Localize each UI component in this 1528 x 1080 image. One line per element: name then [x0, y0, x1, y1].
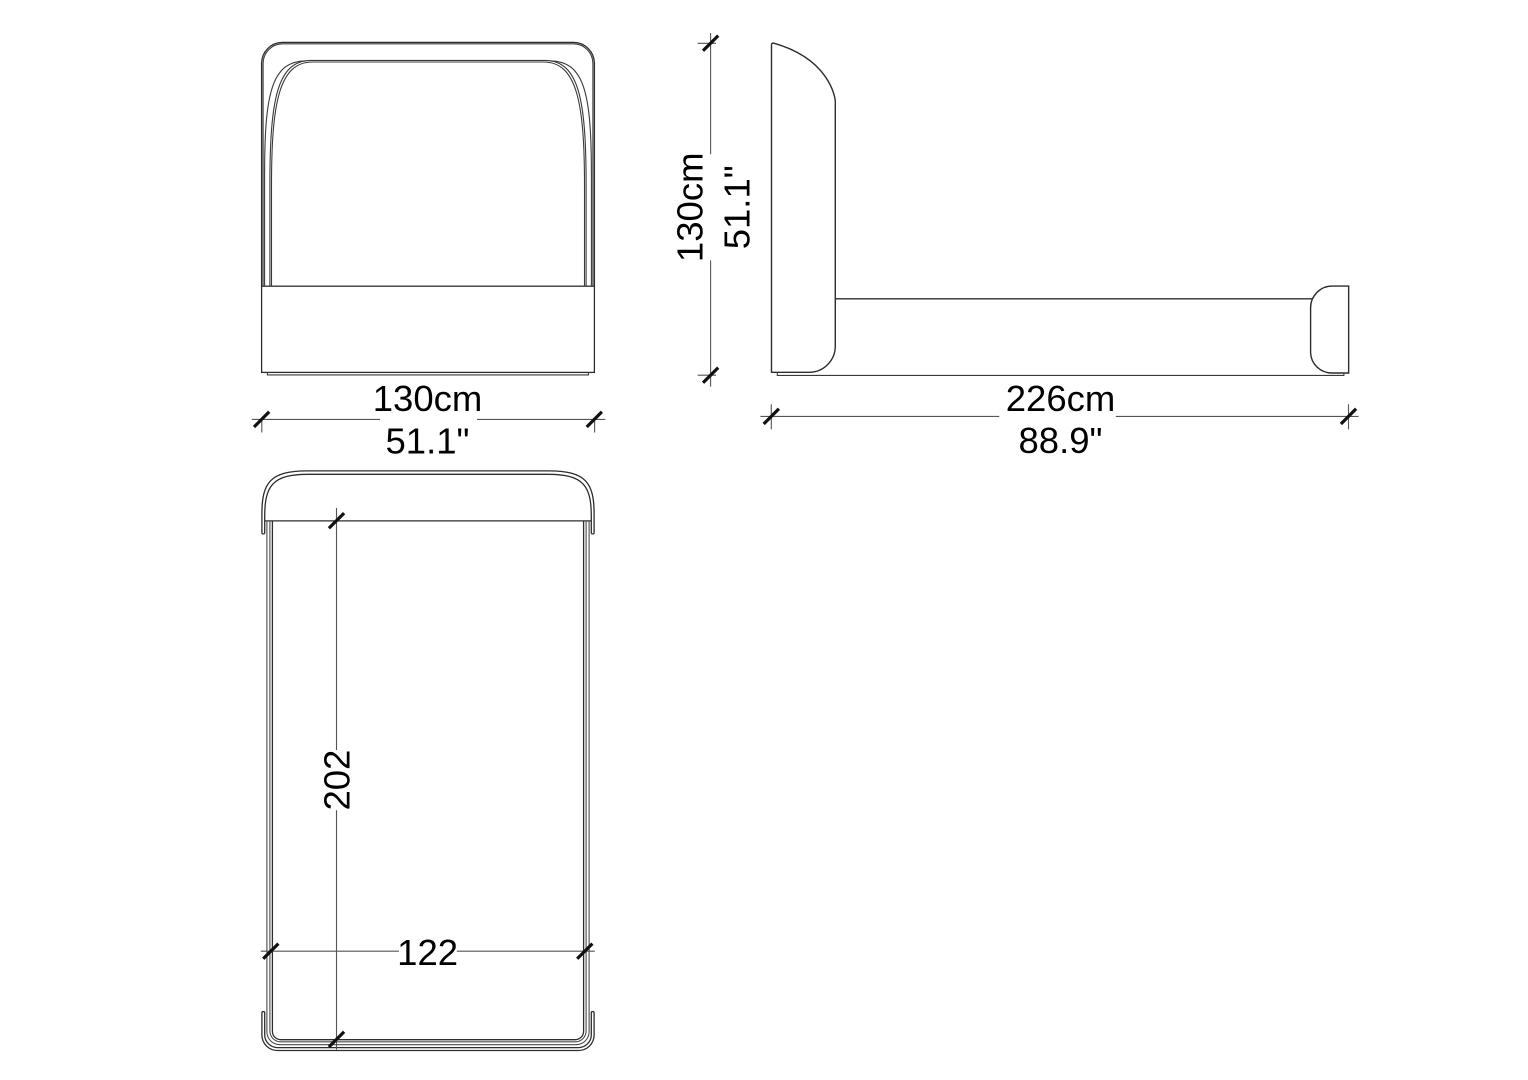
svg-text:130cm: 130cm — [373, 378, 483, 419]
svg-text:51.1": 51.1" — [717, 165, 758, 249]
svg-text:51.1": 51.1" — [386, 420, 470, 461]
svg-text:226cm: 226cm — [1006, 378, 1116, 419]
svg-text:130cm: 130cm — [670, 153, 711, 263]
svg-text:122: 122 — [397, 932, 458, 973]
svg-text:88.9": 88.9" — [1019, 420, 1103, 461]
svg-text:202: 202 — [317, 750, 358, 811]
